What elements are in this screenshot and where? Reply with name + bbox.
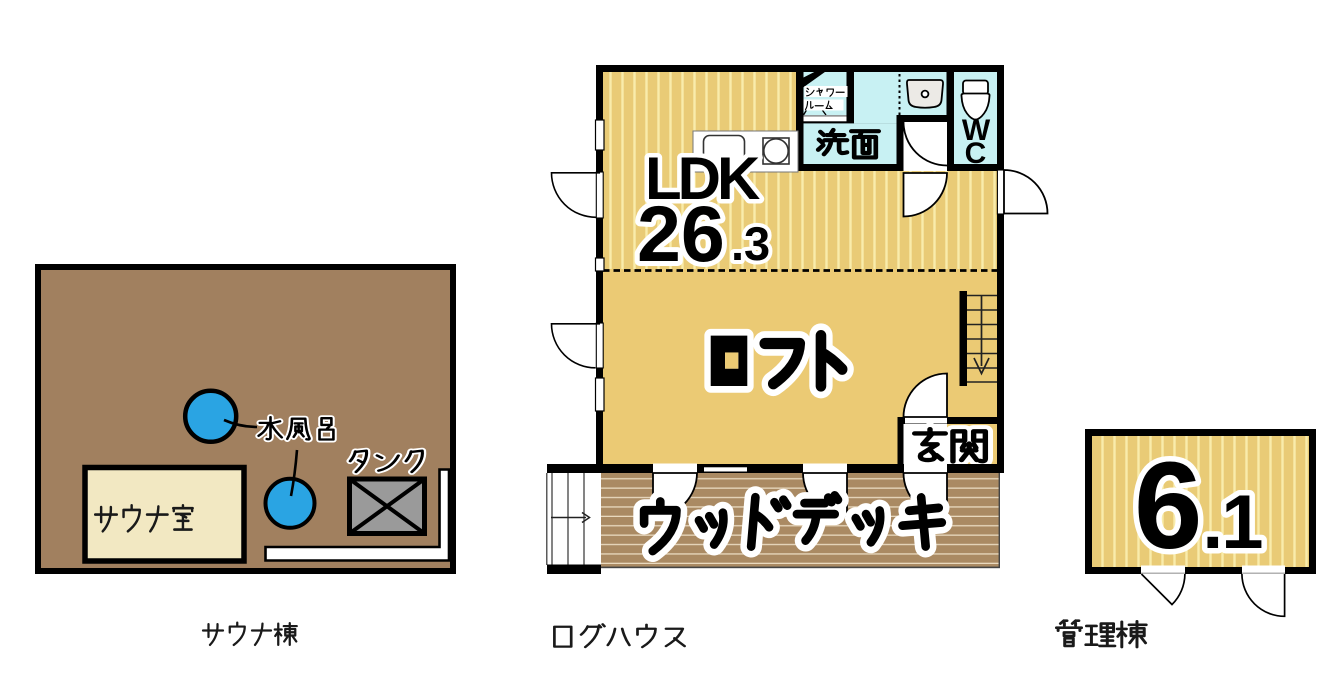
svg-text:26: 26	[637, 189, 725, 278]
svg-text:.3: .3	[731, 217, 770, 270]
svg-text:C: C	[965, 137, 987, 170]
